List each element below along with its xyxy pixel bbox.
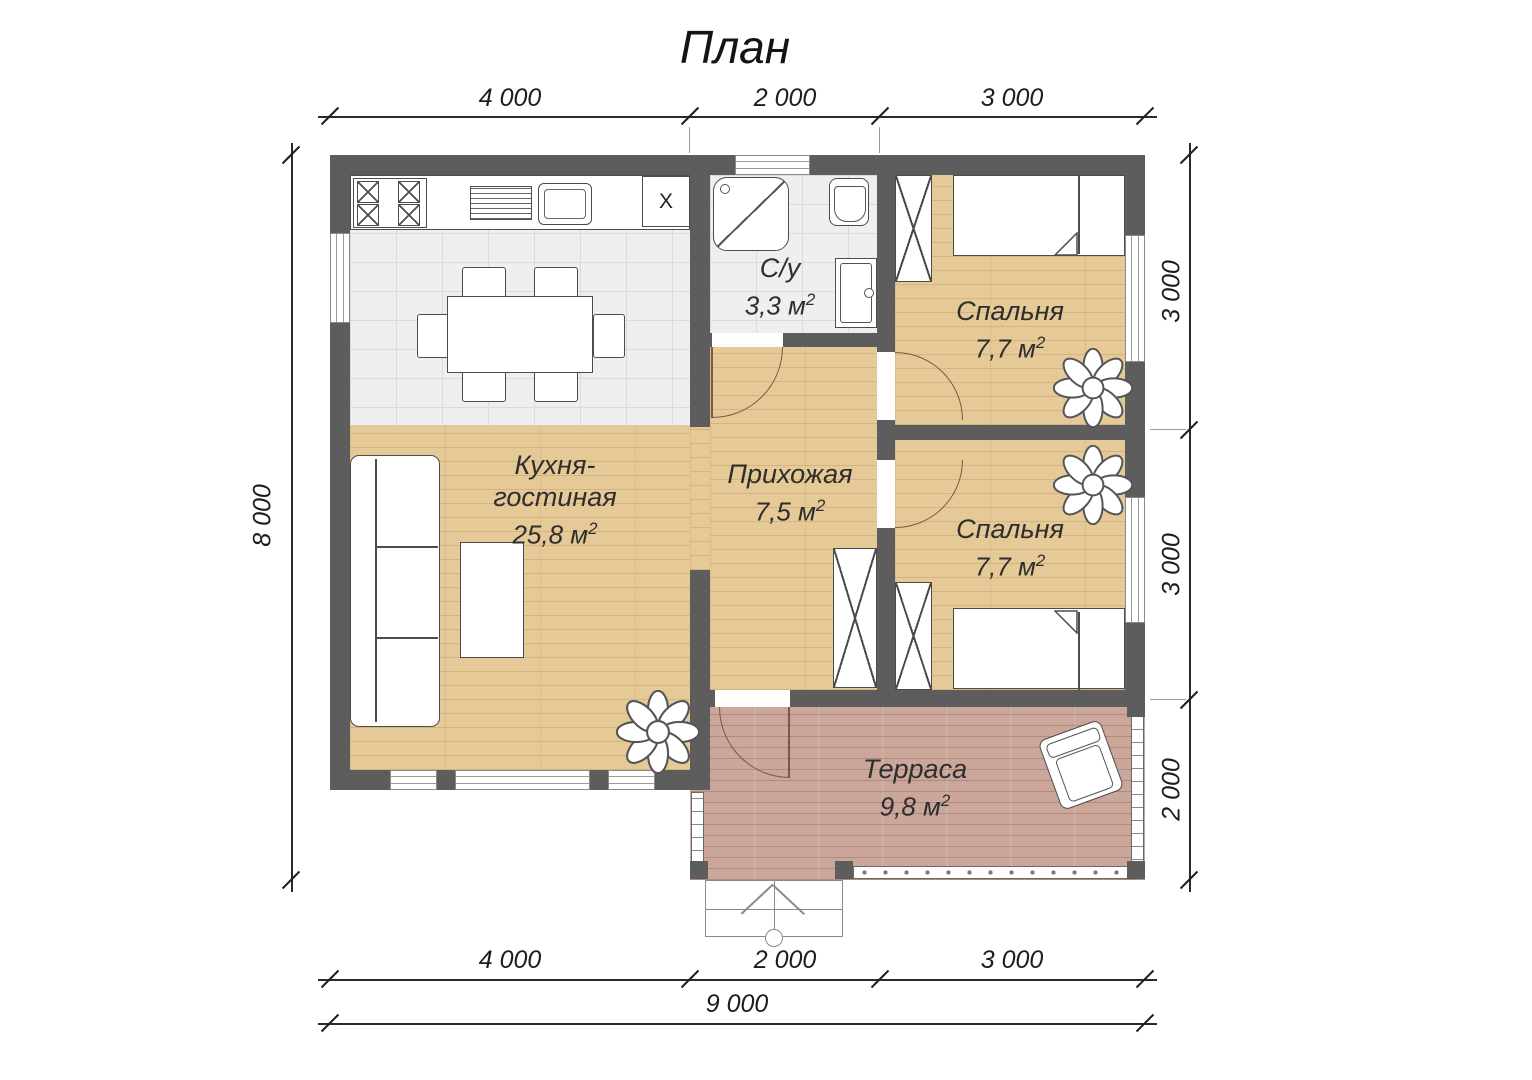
blanket-fold-icon (1054, 232, 1078, 256)
chair (462, 267, 506, 299)
extension-line (1150, 429, 1186, 430)
dimension-label: 2 000 (1158, 710, 1187, 870)
dimension-label: 4 000 (430, 84, 590, 113)
extension-line (1150, 699, 1186, 700)
wardrobe-icon (833, 548, 877, 688)
dimension-line (318, 979, 1157, 981)
dimension-label: 3 000 (1158, 485, 1187, 645)
fridge-icon: X (642, 176, 690, 227)
room-area: 7,5 м2 (700, 490, 880, 528)
chair (462, 370, 506, 402)
chair (417, 314, 449, 358)
window (330, 233, 350, 323)
toilet-icon (829, 178, 869, 226)
sink-drainer-icon (470, 186, 532, 220)
extension-line (689, 127, 690, 153)
door-opening (712, 333, 783, 347)
room-label-terrace: Терраса 9,8 м2 (820, 753, 1010, 823)
room-name: Прихожая (700, 458, 880, 490)
room-area: 7,7 м2 (920, 545, 1100, 583)
chair (534, 370, 578, 402)
dimension-line (318, 116, 1157, 118)
room-label-hallway: Прихожая 7,5 м2 (700, 458, 880, 528)
fridge-mark: X (659, 190, 673, 214)
stove-burner-icon (357, 181, 379, 203)
sink-icon (538, 183, 592, 225)
dimension-label: 3 000 (932, 946, 1092, 975)
stove-burner-icon (357, 204, 379, 226)
window (455, 770, 590, 790)
room-area: 3,3 м2 (700, 284, 860, 322)
dimension-line (291, 143, 293, 892)
room-name: гостиная (440, 481, 670, 513)
dimension-line (318, 1023, 1157, 1025)
room-label-bedroom2: Спальня 7,7 м2 (920, 513, 1100, 583)
railing (691, 792, 704, 864)
coffee-table (460, 542, 524, 658)
window (735, 155, 810, 175)
chair (593, 314, 625, 358)
railing (853, 866, 1143, 879)
dimension-label: 2 000 (705, 946, 865, 975)
stove-burner-icon (398, 181, 420, 203)
room-area: 9,8 м2 (820, 785, 1010, 823)
room-name: С/у (700, 252, 860, 284)
floor-plan: План X (0, 0, 1532, 1080)
window (390, 770, 437, 790)
bed (953, 608, 1125, 689)
room-label-bedroom1: Спальня 7,7 м2 (920, 295, 1100, 365)
room-label-kitchen: Кухня- гостиная 25,8 м2 (440, 449, 670, 551)
room-name: Кухня- (440, 449, 670, 481)
railing-post (1127, 861, 1145, 879)
dining-table (447, 296, 593, 373)
stove-burner-icon (398, 204, 420, 226)
room-label-bathroom: С/у 3,3 м2 (700, 252, 860, 322)
dimension-label: 3 000 (1158, 212, 1187, 372)
door-opening (715, 690, 790, 707)
entrance-marker-icon (765, 929, 783, 947)
room-name: Терраса (820, 753, 1010, 785)
chair (534, 267, 578, 299)
shower-icon (713, 177, 789, 251)
wardrobe-icon (895, 175, 932, 282)
dimension-line (1189, 143, 1191, 892)
room-area: 25,8 м2 (440, 513, 670, 551)
room-area: 7,7 м2 (920, 327, 1100, 365)
bed (953, 175, 1125, 256)
wardrobe-icon (895, 582, 932, 690)
extension-line (879, 127, 880, 153)
railing-post (690, 861, 708, 879)
blanket-fold-icon (1054, 610, 1078, 634)
door-leaf (788, 707, 790, 778)
page-title: План (595, 20, 875, 74)
dimension-label: 8 000 (249, 436, 278, 596)
dimension-label: 3 000 (932, 84, 1092, 113)
dimension-label: 4 000 (430, 946, 590, 975)
sofa (350, 455, 440, 727)
dimension-label: 2 000 (705, 84, 865, 113)
railing (1131, 711, 1144, 873)
room-name: Спальня (920, 295, 1100, 327)
dimension-label: 9 000 (657, 990, 817, 1019)
railing-post (835, 861, 853, 879)
railing-post (1127, 699, 1145, 717)
plant-icon (616, 690, 700, 774)
window (1125, 235, 1145, 362)
door-opening (877, 352, 895, 420)
door-leaf (711, 347, 713, 418)
room-name: Спальня (920, 513, 1100, 545)
